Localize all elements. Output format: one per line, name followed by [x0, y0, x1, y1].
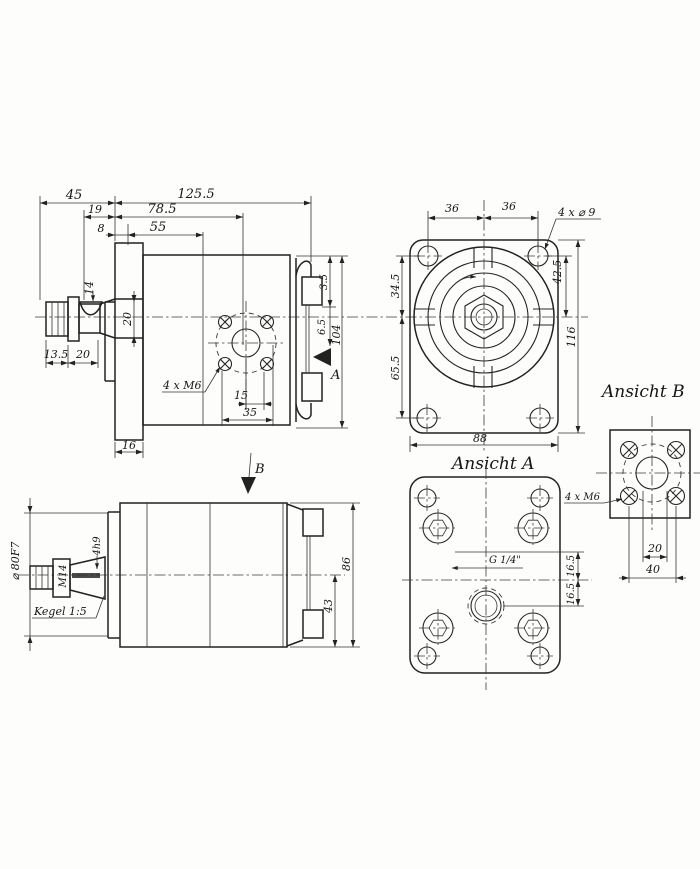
dim-34-5: 34.5	[389, 274, 402, 299]
dim-15: 15	[234, 389, 248, 402]
dim-42-5: 42.5	[551, 260, 564, 286]
dim-36-right: 36	[502, 200, 516, 213]
view-a-socket-holes	[419, 509, 552, 647]
dim-pilot-20: 20	[121, 312, 134, 327]
port-view-a: Ansicht A G 1/4" 16.5	[402, 454, 592, 690]
view-b-title: Ansicht B	[600, 382, 685, 402]
dim-43: 43	[322, 599, 335, 614]
dim-4h9: 4h9	[92, 536, 103, 557]
view-a-arrow-icon	[313, 348, 331, 366]
label-g14: G 1/4"	[489, 555, 521, 566]
dim-key-14: 14	[83, 281, 96, 295]
rotation-arrow-icon	[452, 277, 476, 287]
view-b-arrow-icon	[241, 477, 256, 494]
dim-88: 88	[473, 432, 487, 445]
dim-19: 19	[88, 203, 102, 216]
dim-16: 16	[122, 439, 136, 452]
view-a-dimensions: G 1/4" 16.5 16.5	[452, 552, 584, 606]
dim-80f7: ⌀ 80F7	[9, 542, 22, 581]
dim-78-5: 78.5	[148, 202, 177, 217]
front-view-corner-holes	[413, 242, 554, 432]
technical-drawing-page: 45 125.5 19 78.5 8 55 13.5 20 20 14	[0, 0, 700, 869]
dim-35: 35	[243, 406, 257, 419]
side-view-shaft	[46, 297, 143, 381]
dim-55: 55	[150, 220, 167, 235]
dim-13-5: 13.5	[44, 348, 69, 361]
dim-125-5: 125.5	[177, 187, 214, 202]
view-b-arrow-label: B	[254, 462, 265, 477]
dim-65-5: 65.5	[389, 356, 402, 381]
pump-drawing-svg: 45 125.5 19 78.5 8 55 13.5 20 20 14	[0, 0, 700, 869]
front-view-dimensions: 36 36 4 x ⌀ 9 42.5 116 34.5 65.5 88	[389, 200, 601, 452]
dim-116: 116	[565, 327, 578, 348]
dim-20-shaft: 20	[75, 348, 90, 361]
flange-view-b: Ansicht B 20 40 4 x M6	[564, 382, 700, 583]
front-view: 36 36 4 x ⌀ 9 42.5 116 34.5 65.5 88	[389, 200, 601, 452]
dim-16-5-top: 16.5	[566, 555, 577, 577]
dim-45: 45	[65, 188, 83, 203]
dim-b-40: 40	[645, 563, 660, 576]
dim-16-5-bottom: 16.5	[566, 583, 577, 605]
side-view: 45 125.5 19 78.5 8 55 13.5 20 20 14	[40, 187, 348, 458]
view-b-dimensions: 20 40 4 x M6	[564, 491, 686, 583]
dim-6-5: 6.5	[317, 319, 328, 335]
dim-36-left: 36	[445, 202, 459, 215]
view-a-title: Ansicht A	[450, 454, 534, 474]
label-m14: M14	[58, 565, 69, 589]
top-view: B M14 4h9	[9, 453, 360, 651]
label-4xd9: 4 x ⌀ 9	[557, 206, 595, 219]
view-b-arrow: B	[241, 453, 265, 494]
dim-b-20: 20	[647, 542, 662, 555]
side-view-body	[115, 213, 322, 440]
dim-8: 8	[98, 222, 105, 235]
label-kegel: Kegel 1:5	[33, 605, 87, 618]
dim-86: 86	[340, 557, 353, 571]
dim-3-5: 3.5	[319, 274, 330, 290]
label-4xm6-side: 4 x M6	[162, 379, 201, 392]
view-a-arrow-label: A	[330, 368, 340, 383]
label-4xm6-b: 4 x M6	[564, 492, 601, 503]
dim-104: 104	[330, 325, 343, 346]
